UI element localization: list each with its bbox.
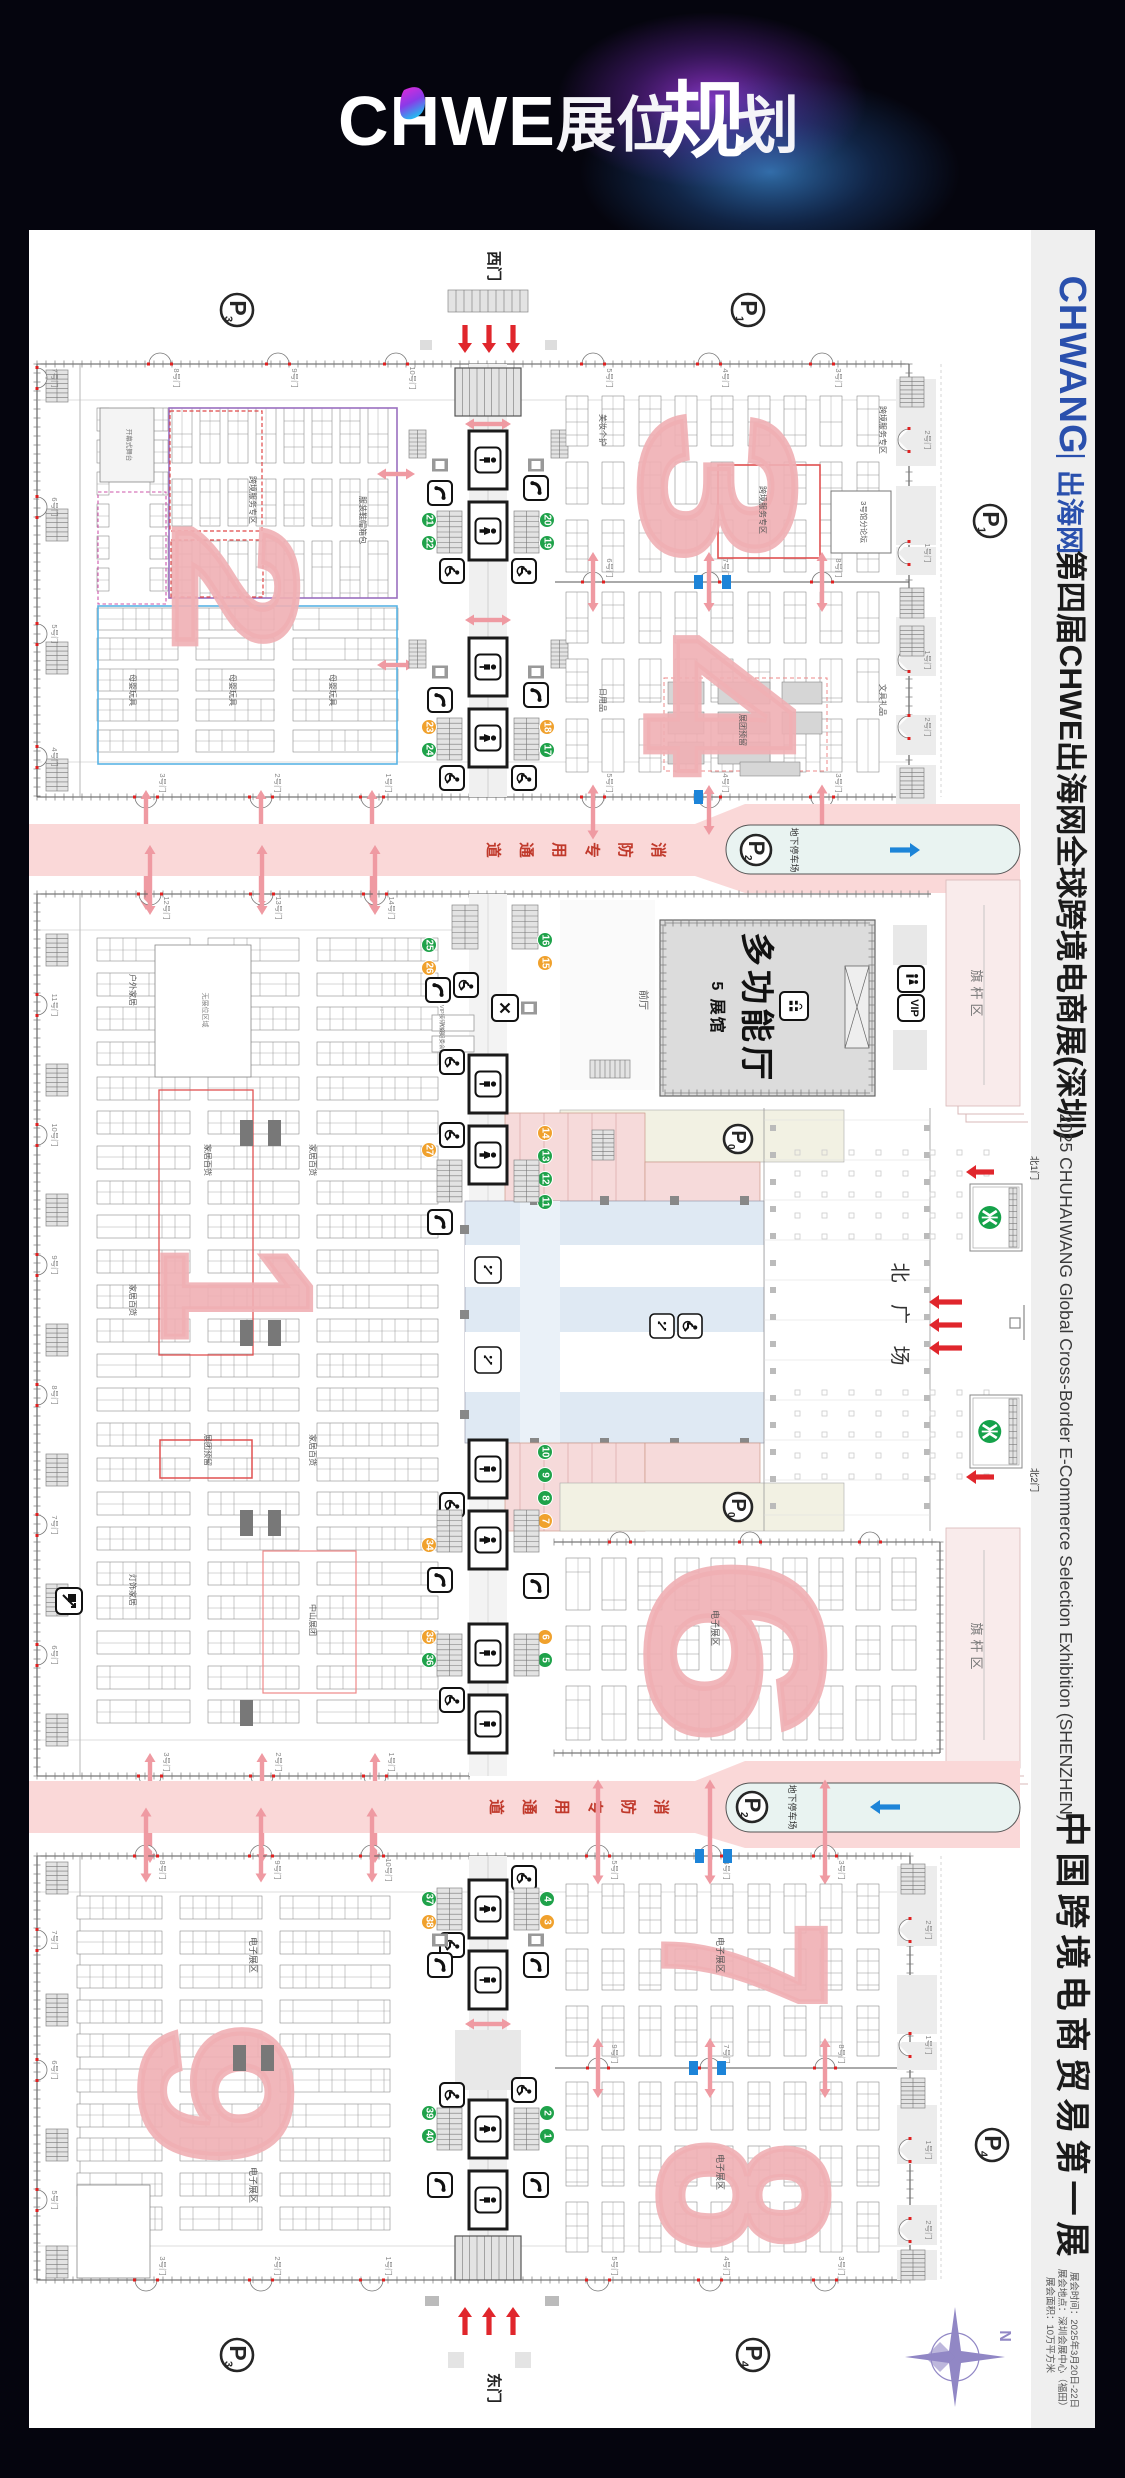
svg-text:4号门: 4号门 <box>50 747 59 766</box>
svg-text:P: P <box>978 511 1004 526</box>
svg-text:P: P <box>727 1130 749 1143</box>
svg-text:中山展团: 中山展团 <box>308 1604 318 1636</box>
svg-text:母婴玩具: 母婴玩具 <box>328 674 337 706</box>
svg-text:6: 6 <box>540 1634 551 1640</box>
svg-text:13: 13 <box>540 1150 551 1162</box>
svg-text:3: 3 <box>222 316 234 322</box>
svg-text:展会地点：深圳会展中心（福田）: 展会地点：深圳会展中心（福田） <box>1056 2269 1068 2412</box>
svg-text:7号门: 7号门 <box>50 1515 59 1534</box>
svg-text:展会面积：10万平方米: 展会面积：10万平方米 <box>1044 2277 1056 2374</box>
svg-text:P: P <box>736 300 762 315</box>
svg-text:家居百货: 家居百货 <box>203 1144 213 1176</box>
svg-text:6: 6 <box>596 1557 875 1745</box>
svg-text:2号门: 2号门 <box>924 1920 933 1939</box>
svg-text:37: 37 <box>424 1893 435 1905</box>
svg-text:道: 道 <box>487 1799 506 1815</box>
svg-text:通: 通 <box>520 1799 538 1815</box>
svg-text:8号门: 8号门 <box>158 1860 167 1879</box>
svg-text:3号门: 3号门 <box>834 773 843 792</box>
svg-text:19: 19 <box>542 537 553 549</box>
svg-text:N: N <box>996 2330 1013 2342</box>
svg-text:地下停车场: 地下停车场 <box>789 827 800 872</box>
svg-text:P: P <box>225 300 251 315</box>
svg-text:2号门: 2号门 <box>923 717 932 736</box>
svg-text:灯饰家居: 灯饰家居 <box>128 1574 138 1606</box>
svg-text:4: 4 <box>602 636 839 775</box>
svg-text:P: P <box>727 1498 749 1511</box>
svg-text:P: P <box>225 2345 251 2360</box>
svg-text:跨境服务专区: 跨境服务专区 <box>758 486 768 534</box>
svg-text:13号门: 13号门 <box>274 896 283 919</box>
svg-text:9号门: 9号门 <box>273 1860 282 1879</box>
svg-text:8号门: 8号门 <box>834 558 843 577</box>
svg-text:电子展区: 电子展区 <box>715 1937 726 1973</box>
svg-text:4: 4 <box>542 1896 553 1902</box>
svg-text:14: 14 <box>540 1127 551 1139</box>
svg-text:16: 16 <box>540 934 551 946</box>
svg-text:P: P <box>741 2345 767 2360</box>
svg-text:8: 8 <box>610 2139 877 2251</box>
svg-text:展团预留: 展团预留 <box>738 714 748 746</box>
svg-text:北 广 场: 北 广 场 <box>888 1262 911 1373</box>
svg-text:防: 防 <box>619 1799 638 1815</box>
svg-text:消: 消 <box>652 1799 671 1815</box>
svg-text:地下停车场: 地下停车场 <box>787 1784 798 1829</box>
svg-text:15: 15 <box>540 957 551 969</box>
svg-text:8: 8 <box>540 1495 551 1501</box>
svg-text:3号门: 3号门 <box>162 1752 171 1771</box>
svg-text:1号门: 1号门 <box>384 773 393 792</box>
svg-text:5号门: 5号门 <box>610 1860 619 1879</box>
svg-text:旗杆区: 旗杆区 <box>969 969 984 1020</box>
svg-text:5号门: 5号门 <box>605 368 614 387</box>
svg-text:7号门: 7号门 <box>722 2044 731 2063</box>
svg-text:1号门: 1号门 <box>924 2035 933 2054</box>
svg-text:40: 40 <box>424 2130 435 2142</box>
svg-text:通: 通 <box>517 842 535 858</box>
svg-text:4号门: 4号门 <box>721 773 730 792</box>
svg-text:0: 0 <box>725 1144 736 1150</box>
svg-text:26: 26 <box>424 962 435 974</box>
svg-text:35: 35 <box>424 1631 435 1643</box>
svg-text:3号门: 3号门 <box>158 773 167 792</box>
svg-text:3号门: 3号门 <box>834 368 843 387</box>
svg-text:5号门: 5号门 <box>50 2190 59 2209</box>
svg-text:5号门: 5号门 <box>50 624 59 643</box>
svg-text:1号门: 1号门 <box>387 1752 396 1771</box>
svg-text:规: 规 <box>662 74 746 168</box>
svg-text:2号门: 2号门 <box>273 2256 282 2275</box>
svg-text:4: 4 <box>738 2361 750 2368</box>
svg-text:防: 防 <box>616 842 635 858</box>
svg-text:6号门: 6号门 <box>50 1645 59 1664</box>
svg-text:展团预留: 展团预留 <box>203 1434 213 1466</box>
svg-text:电子展区: 电子展区 <box>715 2154 726 2190</box>
svg-text:划: 划 <box>737 92 799 161</box>
svg-text:无展位区域: 无展位区域 <box>201 993 210 1028</box>
svg-text:3: 3 <box>222 2361 234 2367</box>
svg-text:母婴玩具: 母婴玩具 <box>128 674 137 706</box>
svg-text:跨境服务专区: 跨境服务专区 <box>248 476 258 524</box>
svg-text:11号门: 11号门 <box>50 994 59 1017</box>
svg-text:P: P <box>980 2135 1006 2150</box>
svg-text:2025 CHUHAIWANG Global Cross-B: 2025 CHUHAIWANG Global Cross-Border E-Co… <box>1056 1113 1076 1820</box>
svg-text:4号门: 4号门 <box>721 368 730 387</box>
svg-text:27: 27 <box>424 1144 435 1156</box>
svg-text:跨境服务专区: 跨境服务专区 <box>878 406 888 454</box>
svg-text:专: 专 <box>583 842 602 858</box>
svg-text:1号门: 1号门 <box>923 543 932 562</box>
svg-text:2: 2 <box>138 523 333 651</box>
svg-text:1号门: 1号门 <box>384 2256 393 2275</box>
svg-text:CHWANG: CHWANG <box>1051 275 1093 454</box>
svg-text:3: 3 <box>596 413 839 564</box>
svg-text:1: 1 <box>975 527 987 533</box>
svg-text:6号门: 6号门 <box>50 497 59 516</box>
svg-text:电子展区: 电子展区 <box>248 2167 259 2203</box>
svg-text:8号门: 8号门 <box>50 1385 59 1404</box>
svg-text:2号门: 2号门 <box>924 2220 933 2239</box>
svg-text:北2门: 北2门 <box>1028 1468 1040 1492</box>
svg-text:2: 2 <box>742 855 753 861</box>
svg-text:旗杆区: 旗杆区 <box>969 1622 984 1673</box>
svg-text:6号门: 6号门 <box>50 2060 59 2079</box>
svg-text:6号门: 6号门 <box>605 558 614 577</box>
svg-text:36: 36 <box>424 1654 435 1666</box>
svg-text:2号门: 2号门 <box>923 430 932 449</box>
svg-text:23: 23 <box>424 721 435 733</box>
svg-text:VIP: VIP <box>908 999 920 1017</box>
svg-text:前厅: 前厅 <box>637 990 650 1010</box>
svg-text:10号门: 10号门 <box>50 1123 59 1146</box>
svg-text:P: P <box>740 1798 765 1813</box>
svg-text:第四届CHWE出海网全球跨境电商展(深圳): 第四届CHWE出海网全球跨境电商展(深圳) <box>1053 550 1089 1140</box>
svg-text:用: 用 <box>550 842 568 858</box>
svg-text:7号门: 7号门 <box>50 1930 59 1949</box>
svg-text:21: 21 <box>424 514 435 526</box>
svg-text:12号门: 12号门 <box>162 896 171 919</box>
svg-text:东门: 东门 <box>485 2373 503 2403</box>
svg-text:3号馆分论坛: 3号馆分论坛 <box>859 501 869 543</box>
svg-text:10号门: 10号门 <box>408 366 417 389</box>
svg-text:2: 2 <box>542 2110 553 2116</box>
svg-text:展位: 展位 <box>556 92 676 159</box>
svg-text:电子展区: 电子展区 <box>710 1610 721 1646</box>
svg-text:3: 3 <box>542 1919 553 1925</box>
svg-text:5 展馆: 5 展馆 <box>708 981 727 1034</box>
svg-text:24: 24 <box>424 744 435 756</box>
svg-text:2号门: 2号门 <box>273 773 282 792</box>
svg-text:5: 5 <box>540 1657 551 1663</box>
svg-text:1: 1 <box>119 1245 356 1342</box>
svg-text:22: 22 <box>424 537 435 549</box>
svg-text:3号门: 3号门 <box>837 2256 846 2275</box>
svg-text:7: 7 <box>540 1518 551 1524</box>
svg-text:家居百货: 家居百货 <box>308 1144 318 1176</box>
svg-text:家居百货: 家居百货 <box>308 1434 318 1466</box>
svg-text:服装鞋帽箱包: 服装鞋帽箱包 <box>358 496 368 544</box>
svg-text:34: 34 <box>424 1539 435 1551</box>
svg-text:中国跨境电商贸易第一展: 中国跨境电商贸易第一展 <box>1052 1811 1091 2262</box>
svg-text:道: 道 <box>484 842 503 858</box>
svg-text:2号门: 2号门 <box>274 1752 283 1771</box>
svg-text:｜出海网: ｜出海网 <box>1054 442 1086 554</box>
svg-text:展会时间：2025年3月20日-22日: 展会时间：2025年3月20日-22日 <box>1068 2272 1080 2408</box>
svg-text:日用品: 日用品 <box>598 688 607 712</box>
svg-text:12: 12 <box>540 1173 551 1185</box>
svg-text:3号门: 3号门 <box>158 2256 167 2275</box>
svg-text:开幕式舞台: 开幕式舞台 <box>125 429 134 462</box>
svg-text:14号门: 14号门 <box>387 896 396 919</box>
svg-text:CHWE: CHWE <box>338 82 556 160</box>
svg-text:户外家居: 户外家居 <box>128 974 138 1006</box>
svg-text:1号门: 1号门 <box>924 2140 933 2159</box>
svg-text:10号门: 10号门 <box>384 1858 393 1881</box>
svg-text:消: 消 <box>649 842 668 858</box>
svg-text:用: 用 <box>553 1799 571 1815</box>
svg-text:多功能厅: 多功能厅 <box>737 932 775 1084</box>
svg-text:5号门: 5号门 <box>610 2256 619 2275</box>
svg-text:9: 9 <box>98 2023 335 2166</box>
svg-text:P: P <box>744 841 769 856</box>
svg-text:7号门: 7号门 <box>50 368 59 387</box>
svg-text:4: 4 <box>977 2151 989 2158</box>
svg-text:10: 10 <box>540 1446 551 1458</box>
svg-text:7: 7 <box>615 1922 874 2009</box>
svg-text:5号门: 5号门 <box>605 773 614 792</box>
svg-text:17: 17 <box>542 744 553 756</box>
svg-text:9号门: 9号门 <box>290 368 299 387</box>
svg-text:3号门: 3号门 <box>837 1860 846 1879</box>
svg-text:9: 9 <box>540 1472 551 1478</box>
svg-text:8号门: 8号门 <box>837 2044 846 2063</box>
svg-text:家居百货: 家居百货 <box>128 1284 138 1316</box>
svg-text:18: 18 <box>542 721 553 733</box>
svg-text:25: 25 <box>424 939 435 951</box>
svg-text:2: 2 <box>738 1812 749 1818</box>
svg-text:北1门: 北1门 <box>1028 1156 1040 1180</box>
svg-text:电子展区: 电子展区 <box>248 1937 259 1973</box>
svg-text:1: 1 <box>733 316 745 322</box>
svg-text:9号门: 9号门 <box>610 2044 619 2063</box>
svg-text:0: 0 <box>725 1512 736 1518</box>
svg-text:8号门: 8号门 <box>172 368 181 387</box>
svg-text:文具礼品: 文具礼品 <box>878 684 888 716</box>
svg-text:20: 20 <box>542 514 553 526</box>
svg-text:4号门: 4号门 <box>722 1860 731 1879</box>
svg-text:西门: 西门 <box>485 251 503 281</box>
svg-text:1: 1 <box>542 2133 553 2139</box>
svg-text:11: 11 <box>540 1197 551 1208</box>
svg-text:4号门: 4号门 <box>722 2256 731 2275</box>
svg-text:9号门: 9号门 <box>50 1255 59 1274</box>
svg-text:7号门: 7号门 <box>721 558 730 577</box>
svg-text:母婴玩具: 母婴玩具 <box>228 674 237 706</box>
svg-text:39: 39 <box>424 2107 435 2119</box>
svg-text:美妆个护: 美妆个护 <box>598 414 608 446</box>
svg-text:38: 38 <box>424 1916 435 1928</box>
svg-text:专: 专 <box>586 1799 605 1815</box>
